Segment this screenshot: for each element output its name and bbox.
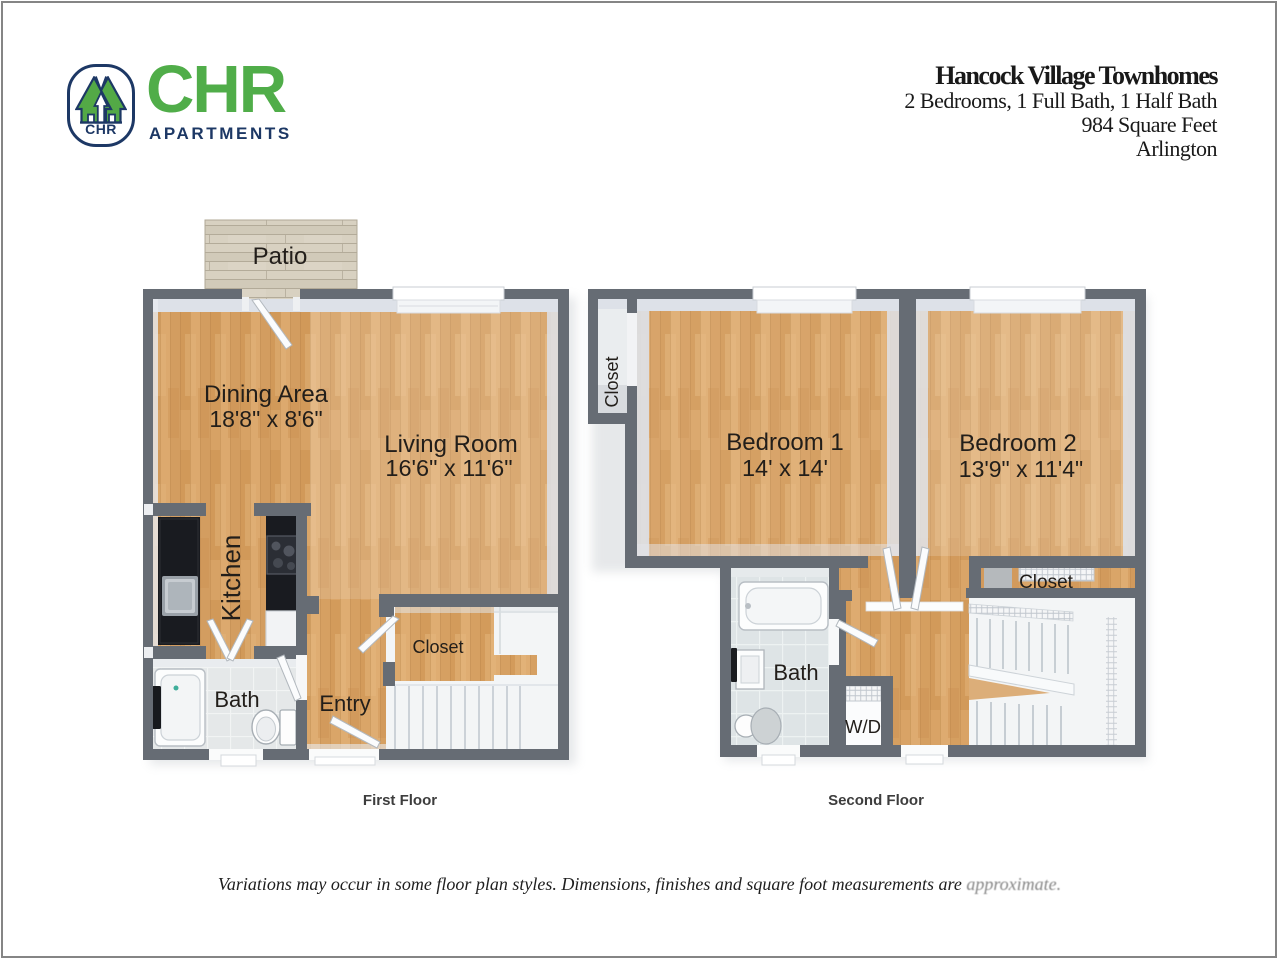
svg-text:Kitchen: Kitchen — [216, 535, 246, 622]
svg-text:Closet: Closet — [412, 637, 463, 657]
svg-text:Patio: Patio — [253, 243, 308, 270]
svg-text:Dining Area: Dining Area — [204, 381, 329, 408]
svg-text:Entry: Entry — [319, 691, 370, 716]
svg-text:W/D: W/D — [845, 716, 881, 737]
svg-text:18'8" x 8'6": 18'8" x 8'6" — [209, 406, 322, 432]
svg-text:Bath: Bath — [773, 660, 818, 685]
svg-text:Closet: Closet — [1019, 572, 1074, 593]
svg-text:16'6" x 11'6": 16'6" x 11'6" — [385, 455, 512, 481]
svg-text:Bath: Bath — [214, 687, 259, 712]
svg-text:14' x 14': 14' x 14' — [742, 455, 828, 481]
svg-text:Bedroom 2: Bedroom 2 — [959, 430, 1076, 457]
svg-text:Living Room: Living Room — [384, 431, 517, 458]
svg-text:13'9" x 11'4": 13'9" x 11'4" — [959, 456, 1083, 482]
svg-text:Bedroom 1: Bedroom 1 — [726, 429, 843, 456]
svg-text:Closet: Closet — [602, 356, 622, 407]
